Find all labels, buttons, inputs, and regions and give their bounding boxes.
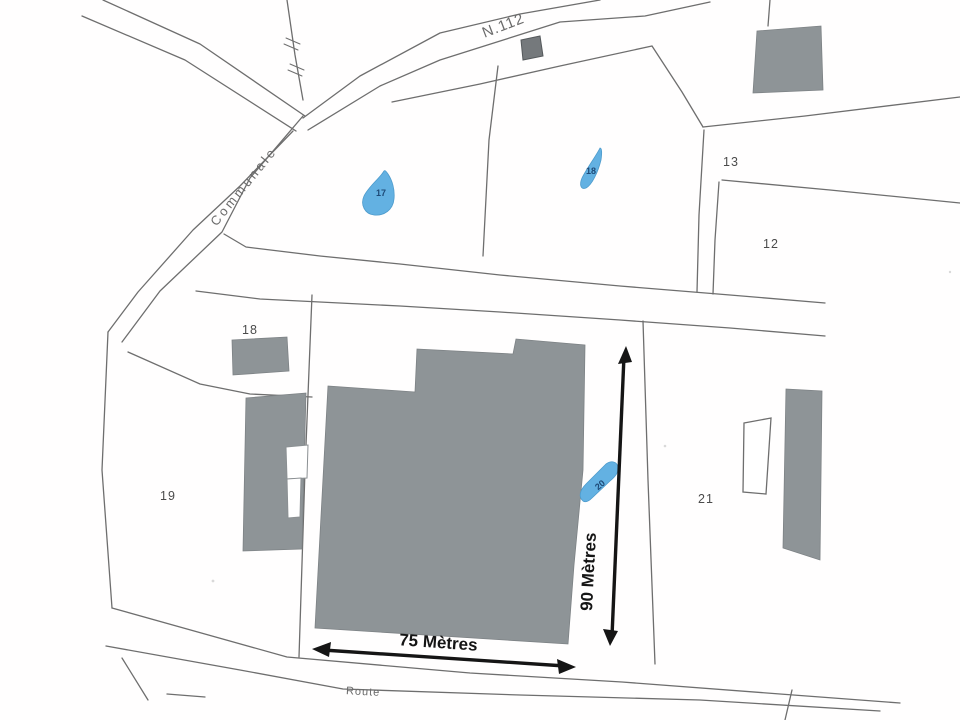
building-small-roadside [521,36,543,60]
cadastral-plan: 13 12 18 19 21 17 18 20 N.112 Communale … [0,0,960,720]
water-label-18: 18 [586,166,596,176]
parcel-label-18: 18 [242,323,258,337]
plan-canvas: 13 12 18 19 21 17 18 20 N.112 Communale … [0,0,960,720]
building-notch-lower [287,478,301,518]
building-parcel18 [232,337,289,375]
water-label-17: 17 [376,188,386,198]
building-topright [753,26,823,93]
parcel-label-13: 13 [723,155,739,169]
parcel-label-12: 12 [763,237,779,251]
road-label-route: Route [346,685,381,699]
building-notch-upper [286,445,308,479]
building-parcel21 [783,389,822,560]
outlined-structure-parcel21 [743,418,771,494]
parcel-label-19: 19 [160,489,176,503]
parcel-label-21: 21 [698,492,714,506]
